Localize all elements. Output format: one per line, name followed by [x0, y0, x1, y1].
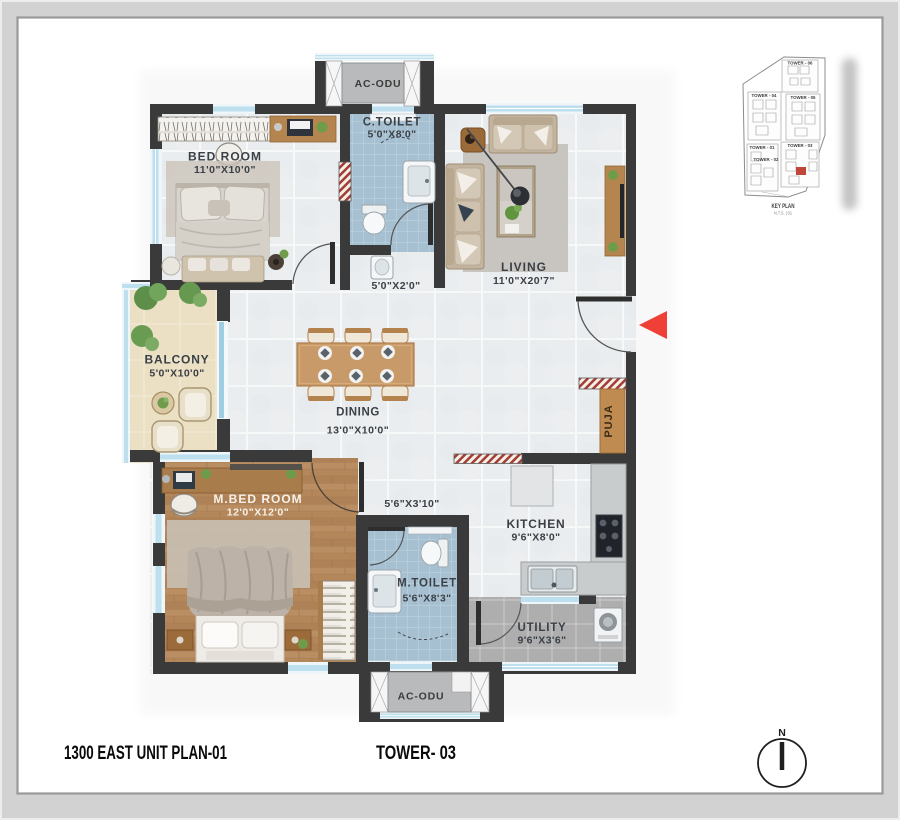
svg-text:13'0"X10'0": 13'0"X10'0" [327, 425, 390, 437]
svg-text:TOWER - 04: TOWER - 04 [752, 93, 777, 98]
svg-text:TOWER - 05: TOWER - 05 [791, 95, 816, 100]
svg-text:N: N [778, 727, 786, 739]
svg-text:BED ROOM: BED ROOM [188, 150, 262, 164]
svg-text:5'6"X3'10": 5'6"X3'10" [384, 498, 439, 510]
svg-text:LIVING: LIVING [501, 260, 547, 274]
svg-text:11'0"X20'7": 11'0"X20'7" [493, 275, 555, 287]
svg-text:UTILITY: UTILITY [517, 622, 566, 634]
svg-text:M.TOILET: M.TOILET [397, 578, 457, 590]
svg-text:5'0"X8'0": 5'0"X8'0" [368, 129, 417, 141]
svg-text:N.T.S. | 01: N.T.S. | 01 [774, 211, 792, 216]
svg-text:AC-ODU: AC-ODU [398, 691, 445, 703]
svg-text:9'6"X8'0": 9'6"X8'0" [512, 532, 561, 544]
svg-text:KEY PLAN: KEY PLAN [772, 203, 795, 210]
svg-text:11'0"X10'0": 11'0"X10'0" [194, 164, 256, 176]
svg-text:TOWER - 01: TOWER - 01 [750, 145, 775, 150]
svg-text:TOWER - 03: TOWER - 03 [788, 143, 813, 148]
svg-text:C.TOILET: C.TOILET [363, 117, 422, 129]
svg-text:5'6"X8'3": 5'6"X8'3" [403, 593, 452, 605]
svg-text:BALCONY: BALCONY [145, 353, 210, 367]
svg-text:TOWER - 02: TOWER - 02 [754, 157, 779, 162]
svg-text:12'0"X12'0": 12'0"X12'0" [227, 507, 290, 519]
svg-text:1300 EAST UNIT PLAN-01: 1300 EAST UNIT PLAN-01 [64, 743, 227, 764]
svg-text:PUJA: PUJA [603, 404, 615, 437]
svg-text:KITCHEN: KITCHEN [507, 517, 566, 531]
svg-text:9'6"X3'6": 9'6"X3'6" [518, 635, 567, 647]
svg-text:TOWER - 06: TOWER - 06 [788, 61, 813, 66]
svg-text:5'0"X2'0": 5'0"X2'0" [372, 280, 421, 292]
svg-text:AC-ODU: AC-ODU [355, 78, 402, 90]
svg-text:M.BED ROOM: M.BED ROOM [213, 492, 302, 506]
svg-text:TOWER- 03: TOWER- 03 [376, 743, 456, 764]
svg-text:DINING: DINING [336, 407, 380, 419]
svg-text:5'0"X10'0": 5'0"X10'0" [149, 368, 204, 380]
